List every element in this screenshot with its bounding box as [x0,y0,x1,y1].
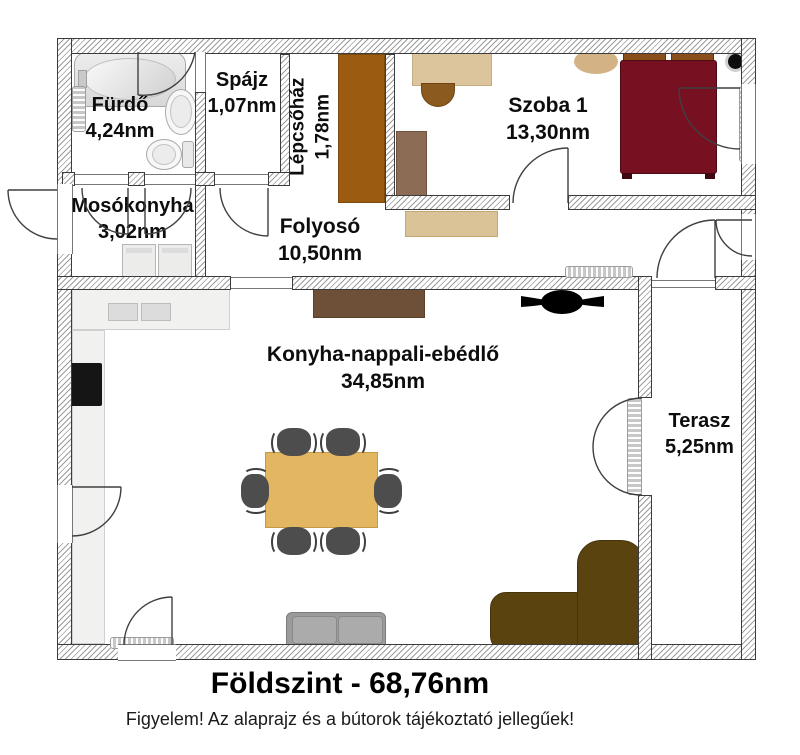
wall [638,495,652,660]
kitchen-sink [108,303,138,321]
room-label-spajz: Spájz1,07nm [198,67,286,119]
door-threshold [75,174,128,185]
sofa-cushion [292,616,337,644]
wall [715,276,756,290]
door-threshold [741,84,756,164]
wall [385,54,395,210]
dining-chair [374,474,402,508]
door-threshold [118,644,176,661]
wall [195,92,206,290]
wall [195,172,215,186]
sofa-cushion [338,616,383,644]
dining-chair [326,527,360,555]
bed-foot [705,173,715,179]
cooktop [141,303,171,321]
washing-machine [122,244,156,277]
wall [57,38,756,54]
wall [385,195,510,210]
room-label-folyoso: Folyosó10,50nm [240,213,400,268]
dining-chair [241,474,269,508]
door-threshold [215,174,268,185]
desk [412,52,492,86]
toilet-tank [182,141,194,168]
room-label-lepcsohaz: Lépcsőház1,78nm [286,52,335,202]
dining-table [265,452,378,528]
washing-machine [158,244,192,277]
radiator [627,398,642,495]
room-label-nappali: Konyha-nappali-ebédlő34,85nm [253,341,513,396]
bed-foot [622,173,632,179]
corner-sofa [577,540,645,652]
dining-chair [326,428,360,456]
door-threshold [145,174,195,185]
wall [568,195,756,210]
page-title: Földszint - 68,76nm [60,664,640,703]
room-label-mosokonyha: Mosókonyha3,02nm [60,193,205,245]
double-bed [620,60,717,174]
disclaimer-text: Figyelem! Az alaprajz és a bútorok tájék… [60,708,640,731]
door-threshold [57,485,73,543]
room-label-terasz: Terasz5,25nm [652,408,747,460]
ceiling-fan-icon [521,290,604,314]
wall [292,276,652,290]
wall [57,276,231,290]
radiator [565,266,633,278]
wall [128,172,145,186]
floor-plan: Fürdő4,24nm Spájz1,07nm Lépcsőház1,78nm … [0,0,800,755]
stairs [338,54,385,203]
room-label-szoba1: Szoba 113,30nm [468,92,628,147]
room-label-furdo: Fürdő4,24nm [60,92,180,144]
wall [638,276,652,398]
cabinet [396,131,427,197]
toilet-seat [152,144,176,165]
door-threshold [652,280,715,288]
door-threshold [741,214,756,260]
desk-chair [421,83,455,107]
hall-sideboard [405,211,498,237]
dining-chair [277,527,311,555]
cased-opening [231,277,292,289]
dining-chair [277,428,311,456]
